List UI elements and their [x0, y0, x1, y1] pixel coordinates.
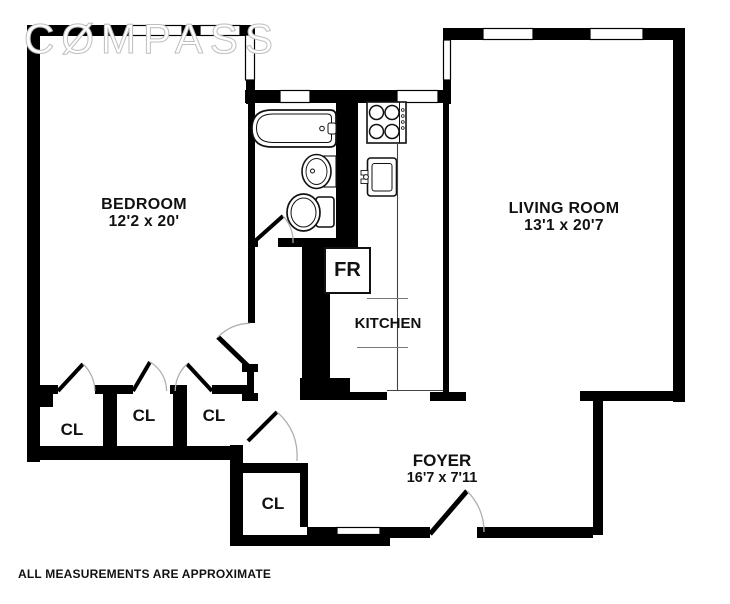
living-room-name: LIVING ROOM	[479, 200, 649, 217]
fridge-label: FR	[325, 259, 370, 282]
closet-label-4: CL	[248, 494, 298, 514]
living-room-dims: 13'1 x 20'7	[479, 217, 649, 234]
window	[483, 29, 533, 40]
foyer-label-block: FOYER 16'7 x 7'11	[387, 452, 497, 487]
floorplan-drawing	[0, 0, 730, 604]
bathroom-sink	[302, 155, 336, 189]
kitchen-name: KITCHEN	[338, 315, 438, 332]
bedroom-name: BEDROOM	[59, 196, 229, 213]
closet1-door	[58, 364, 95, 391]
foyer-closet-door	[248, 412, 297, 461]
window	[444, 40, 451, 80]
kitchen-sink	[361, 158, 397, 196]
stove	[367, 102, 406, 143]
bedroom-dims: 12'2 x 20'	[59, 213, 229, 230]
bedroom-label-block: BEDROOM 12'2 x 20'	[59, 196, 229, 230]
closet2-door	[133, 362, 167, 391]
disclaimer-text: ALL MEASUREMENTS ARE APPROXIMATE	[18, 567, 271, 581]
foyer-dims: 16'7 x 7'11	[387, 470, 497, 487]
closet-label-2: CL	[119, 406, 169, 426]
closet-label-1: CL	[47, 420, 97, 440]
compass-logo: CØMPASS	[24, 15, 280, 63]
burner	[385, 106, 399, 120]
bathtub	[252, 110, 336, 147]
window	[397, 91, 438, 103]
tub-faucet	[328, 123, 336, 134]
burner	[370, 125, 384, 139]
window	[280, 91, 310, 103]
window	[337, 528, 380, 535]
living-room-label-block: LIVING ROOM 13'1 x 20'7	[479, 200, 649, 234]
toilet	[287, 194, 334, 231]
floorplan-page: CØMPASS BEDROOM 12'2 x 20' LIVING ROOM 1…	[0, 0, 730, 604]
entry-door	[430, 491, 484, 534]
closet-label-3: CL	[189, 406, 239, 426]
foyer-name: FOYER	[387, 452, 497, 470]
burner	[385, 125, 399, 139]
window	[590, 29, 643, 40]
burner	[370, 106, 384, 120]
bedroom-door	[218, 323, 250, 368]
